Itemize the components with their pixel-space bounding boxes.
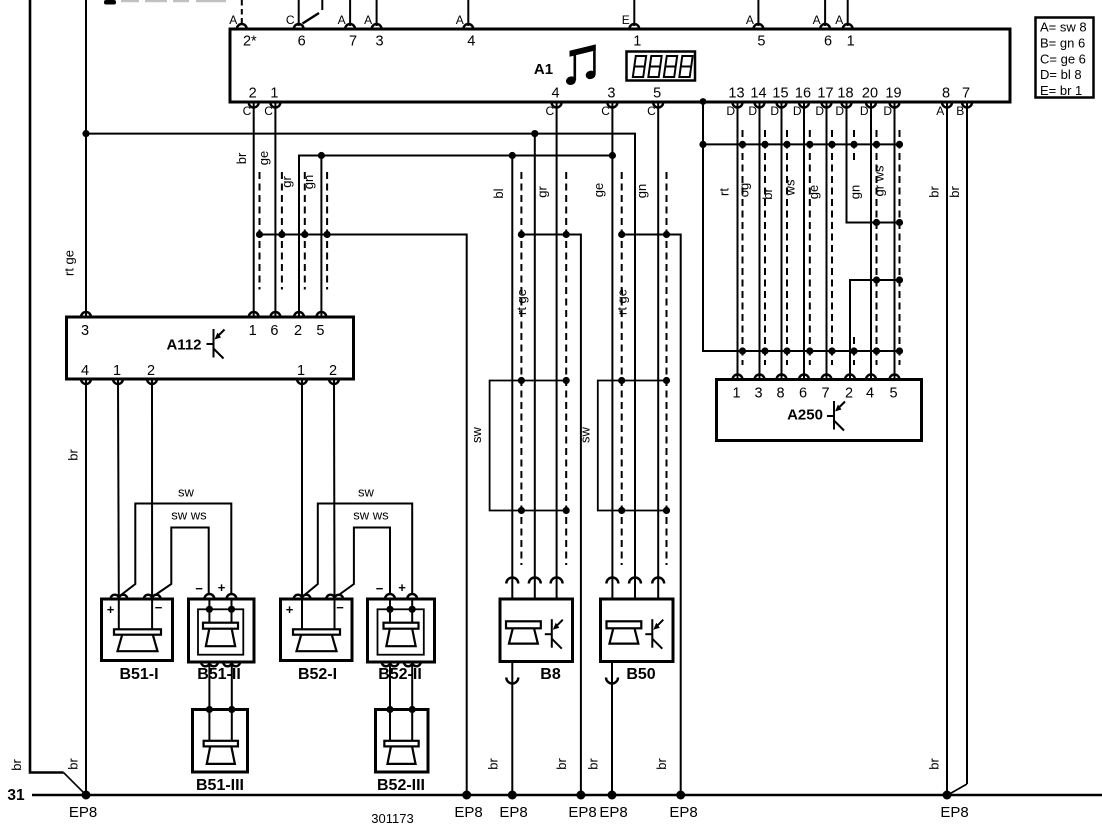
svg-text:D: D: [815, 104, 824, 118]
svg-text:bl: bl: [491, 188, 506, 198]
svg-text:+: +: [107, 602, 115, 617]
svg-text:20: 20: [862, 86, 878, 102]
svg-text:B8: B8: [540, 666, 561, 683]
svg-text:A: A: [746, 13, 754, 27]
svg-text:−: −: [376, 581, 384, 596]
svg-text:br: br: [9, 759, 24, 771]
svg-text:A250: A250: [787, 407, 823, 424]
svg-text:rt: rt: [717, 188, 732, 196]
svg-text:7: 7: [349, 34, 357, 50]
svg-text:A: A: [936, 104, 944, 118]
svg-text:1: 1: [732, 386, 740, 402]
svg-text:gn: gn: [634, 184, 649, 198]
svg-text:−: −: [336, 600, 344, 615]
svg-text:+: +: [286, 602, 294, 617]
svg-text:br: br: [486, 758, 501, 770]
svg-text:EP8: EP8: [568, 804, 596, 821]
svg-text:br: br: [927, 186, 942, 198]
svg-text:4: 4: [467, 34, 475, 50]
svg-text:E: E: [622, 13, 630, 27]
svg-text:D: D: [835, 104, 844, 118]
svg-text:3: 3: [81, 323, 89, 339]
svg-text:B52-I: B52-I: [298, 666, 337, 683]
svg-text:2: 2: [249, 86, 257, 102]
svg-text:5: 5: [757, 34, 765, 50]
svg-text:5: 5: [653, 86, 661, 102]
svg-text:C: C: [545, 104, 554, 118]
svg-text:D: D: [883, 104, 892, 118]
svg-text:ws: ws: [783, 179, 798, 196]
svg-text:4: 4: [552, 86, 560, 102]
svg-text:6: 6: [799, 386, 807, 402]
svg-text:br: br: [66, 449, 81, 461]
svg-text:3: 3: [607, 86, 615, 102]
svg-text:3: 3: [376, 34, 384, 50]
svg-text:+: +: [218, 580, 226, 595]
svg-text:B50: B50: [626, 666, 655, 683]
svg-text:A: A: [835, 13, 843, 27]
svg-text:1: 1: [847, 34, 855, 50]
svg-text:7: 7: [962, 86, 970, 102]
svg-text:gr ws: gr ws: [872, 165, 887, 197]
svg-text:2: 2: [845, 386, 853, 402]
svg-text:ge: ge: [256, 151, 271, 165]
svg-text:C: C: [264, 104, 273, 118]
svg-text:sw: sw: [358, 485, 375, 500]
svg-text:br: br: [927, 758, 942, 770]
svg-text:C: C: [647, 104, 656, 118]
svg-text:1: 1: [113, 363, 121, 379]
svg-text:D= bl 8: D= bl 8: [1040, 67, 1082, 82]
svg-text:gn: gn: [301, 175, 316, 189]
svg-text:br: br: [654, 758, 669, 770]
svg-text:gr: gr: [535, 186, 550, 198]
svg-text:br: br: [66, 758, 81, 770]
svg-text:D: D: [726, 104, 735, 118]
svg-text:D: D: [860, 104, 869, 118]
svg-text:EP8: EP8: [669, 804, 697, 821]
svg-text:−: −: [155, 600, 163, 615]
svg-text:br: br: [234, 152, 249, 164]
svg-text:D: D: [793, 104, 802, 118]
svg-text:1: 1: [633, 34, 641, 50]
svg-text:og: og: [737, 183, 752, 197]
svg-text:C= ge 6: C= ge 6: [1040, 51, 1086, 66]
svg-text:gn: gn: [848, 185, 863, 199]
svg-text:B52-III: B52-III: [377, 777, 425, 794]
svg-text:4: 4: [81, 363, 89, 379]
svg-text:B51-II: B51-II: [197, 666, 241, 683]
svg-text:+: +: [398, 580, 406, 595]
svg-text:sw: sw: [469, 426, 484, 443]
svg-text:6: 6: [298, 34, 306, 50]
svg-text:8: 8: [942, 86, 950, 102]
svg-text:7: 7: [821, 386, 829, 402]
svg-text:EP8: EP8: [599, 804, 627, 821]
svg-text:B51-I: B51-I: [119, 666, 158, 683]
svg-text:br: br: [586, 758, 601, 770]
svg-text:EP8: EP8: [499, 804, 527, 821]
svg-text:A1: A1: [534, 61, 553, 78]
svg-text:sw ws: sw ws: [353, 508, 389, 523]
svg-text:2: 2: [147, 363, 155, 379]
svg-text:13: 13: [728, 86, 744, 102]
svg-text:B52-II: B52-II: [378, 666, 422, 683]
svg-text:301173: 301173: [371, 811, 413, 825]
svg-text:1: 1: [270, 86, 278, 102]
svg-text:4: 4: [866, 386, 874, 402]
svg-text:2: 2: [294, 323, 302, 339]
svg-text:sw: sw: [578, 426, 593, 443]
svg-text:A112: A112: [166, 337, 201, 354]
svg-text:A: A: [364, 13, 372, 27]
svg-text:B51-III: B51-III: [196, 777, 244, 794]
svg-text:br: br: [947, 186, 962, 198]
svg-text:6: 6: [270, 323, 278, 339]
svg-text:A: A: [338, 13, 346, 27]
svg-text:A: A: [813, 13, 821, 27]
svg-text:6: 6: [824, 34, 832, 50]
svg-text:2*: 2*: [243, 34, 257, 50]
svg-text:B= gn 6: B= gn 6: [1040, 35, 1085, 50]
svg-text:2: 2: [329, 363, 337, 379]
svg-text:19: 19: [885, 86, 901, 102]
svg-text:14: 14: [750, 86, 766, 102]
svg-text:3: 3: [754, 386, 762, 402]
svg-text:sw: sw: [178, 485, 195, 500]
svg-text:A= sw 8: A= sw 8: [1040, 20, 1087, 35]
svg-text:31: 31: [7, 787, 25, 804]
svg-text:C: C: [286, 13, 295, 27]
svg-text:C: C: [601, 104, 610, 118]
svg-text:15: 15: [772, 86, 788, 102]
svg-text:8: 8: [776, 386, 784, 402]
svg-text:C: C: [243, 104, 252, 118]
svg-text:18: 18: [837, 86, 853, 102]
svg-text:D: D: [770, 104, 779, 118]
svg-text:17: 17: [817, 86, 833, 102]
svg-text:EP8: EP8: [454, 804, 482, 821]
svg-text:1: 1: [297, 363, 305, 379]
svg-text:−: −: [195, 581, 203, 596]
svg-text:A: A: [456, 13, 464, 27]
svg-text:B: B: [956, 104, 964, 118]
svg-text:br: br: [760, 188, 775, 200]
svg-text:ge: ge: [591, 183, 606, 197]
svg-text:D: D: [748, 104, 757, 118]
svg-text:E= br 1: E= br 1: [1040, 83, 1082, 98]
svg-text:A: A: [229, 13, 237, 27]
svg-text:sw ws: sw ws: [171, 508, 207, 523]
svg-text:5: 5: [889, 386, 897, 402]
svg-text:rt ge: rt ge: [62, 250, 77, 276]
svg-text:EP8: EP8: [69, 804, 97, 821]
svg-text:16: 16: [795, 86, 811, 102]
svg-text:ge: ge: [806, 185, 821, 199]
svg-text:5: 5: [316, 323, 324, 339]
svg-text:EP8: EP8: [940, 804, 968, 821]
svg-text:br: br: [554, 758, 569, 770]
svg-text:1: 1: [249, 323, 257, 339]
